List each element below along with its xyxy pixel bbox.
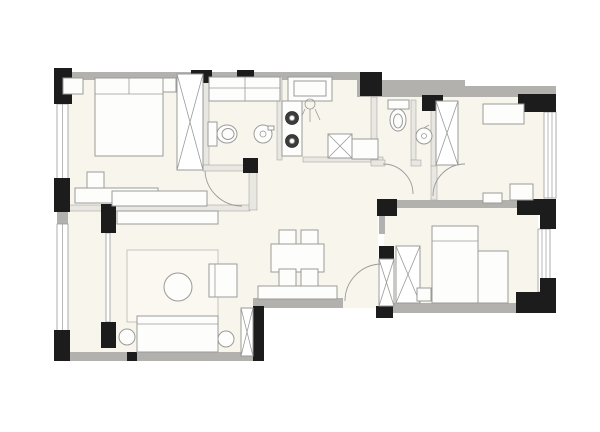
bedroom-2-wardrobe — [396, 246, 420, 303]
pier-bedroom2-top-right-b — [540, 199, 556, 229]
entry-cabinet — [352, 139, 378, 159]
armchair — [209, 264, 237, 297]
pier-balcony-bottom — [101, 322, 116, 348]
nightstand-left — [63, 78, 83, 94]
balcony-window-left-upper — [57, 104, 68, 180]
pier-bottom-small — [127, 352, 137, 361]
pier-top-step — [360, 72, 382, 96]
pier-left-middle — [54, 178, 70, 212]
bathroom-1-cabinet — [209, 77, 280, 101]
pier-bedroom2-top-left — [377, 199, 397, 216]
tv-cabinet — [117, 211, 218, 224]
refrigerator — [328, 134, 352, 158]
hall-floor — [377, 160, 435, 200]
study-chair — [483, 193, 502, 203]
dining-chair-3 — [279, 269, 296, 286]
single-bed — [432, 226, 478, 303]
pier-step-column — [253, 306, 264, 361]
bathroom-2-bottom-stub-right — [411, 160, 421, 166]
bathroom-1-bottom-wall — [203, 165, 246, 171]
study-bench — [510, 184, 533, 200]
hallway-wall — [249, 171, 257, 210]
bathroom-2-divider — [411, 100, 416, 160]
balcony-glass-partition — [106, 233, 110, 322]
pier-bedroom2-bottom-right-b — [540, 278, 556, 313]
pier-left-bottom-corner — [54, 330, 70, 361]
bathroom-1-left-wall — [203, 77, 209, 165]
pier-bedroom2-bottom-left — [376, 306, 393, 318]
side-table-left — [119, 329, 135, 345]
living-bottom-wall — [57, 352, 257, 361]
bedroom-2-nightstand — [417, 288, 431, 301]
entry-threshold-floor — [343, 296, 379, 308]
bedroom-1-wardrobe — [177, 74, 203, 170]
side-table-right — [218, 331, 234, 347]
pier-balcony-top — [101, 204, 116, 233]
nightstand-right — [163, 78, 176, 92]
step-shaft-column — [241, 308, 253, 356]
bedroom-2-shaft-column — [379, 259, 394, 306]
study-desk-top — [483, 104, 524, 124]
bedroom-2-left-wall-upper — [379, 216, 385, 234]
coffee-table — [164, 273, 192, 301]
bedroom-2-bottom-wall — [391, 303, 518, 313]
sofa — [137, 316, 218, 352]
bathroom-2-bottom-stub-left — [371, 160, 385, 166]
sideboard — [258, 286, 337, 299]
floor-plan — [0, 0, 600, 432]
study-wardrobe — [436, 101, 458, 165]
bedroom-2-desk — [478, 251, 508, 303]
balcony-window-left-lower — [57, 224, 68, 332]
pier-bedroom2-mid — [379, 246, 394, 259]
pier-hallway — [243, 158, 258, 173]
cooktop — [282, 101, 302, 156]
dining-table — [271, 244, 324, 272]
sliding-door-panel-b — [112, 191, 207, 206]
study-window-right — [544, 112, 556, 198]
floor-plan-drawing — [0, 0, 600, 432]
dining-chair-4 — [301, 269, 318, 286]
